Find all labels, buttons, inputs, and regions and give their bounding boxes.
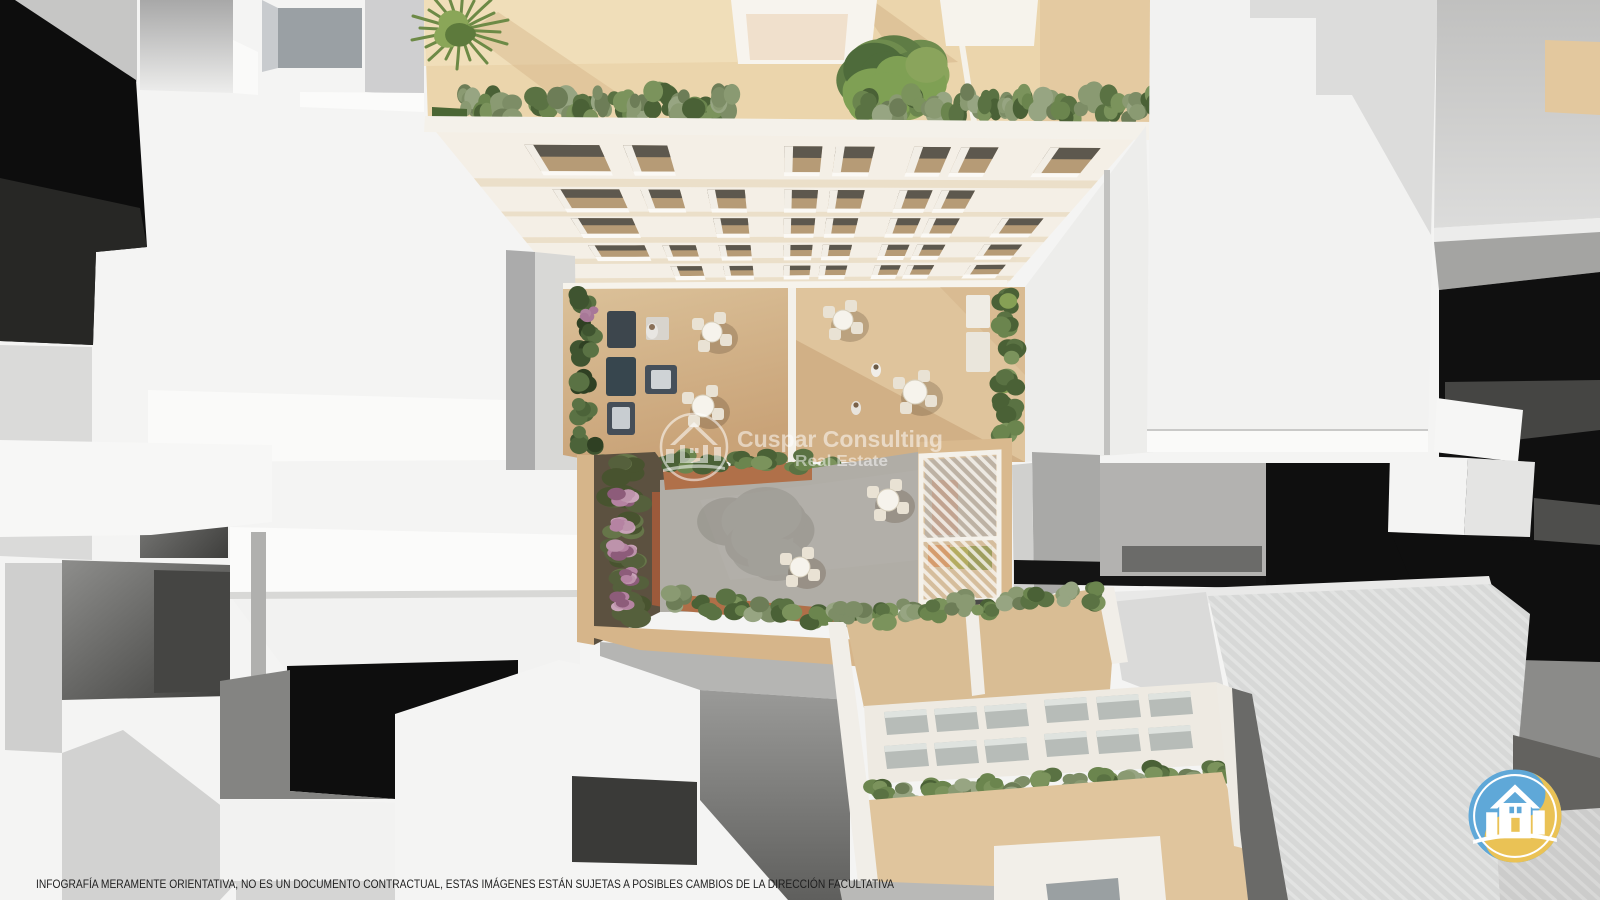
svg-text:INFOGRAFÍA MERAMENTE ORIENTATI: INFOGRAFÍA MERAMENTE ORIENTATIVA, NO ES … bbox=[36, 878, 894, 891]
svg-text:Cuspar Consulting: Cuspar Consulting bbox=[737, 426, 943, 452]
svg-text:Real Estate: Real Estate bbox=[795, 453, 888, 470]
